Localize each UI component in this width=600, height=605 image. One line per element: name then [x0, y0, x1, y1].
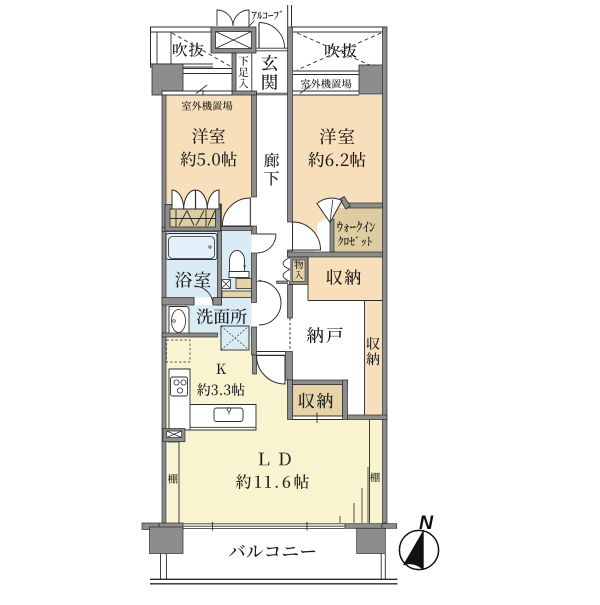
svg-text:N: N [419, 512, 434, 534]
